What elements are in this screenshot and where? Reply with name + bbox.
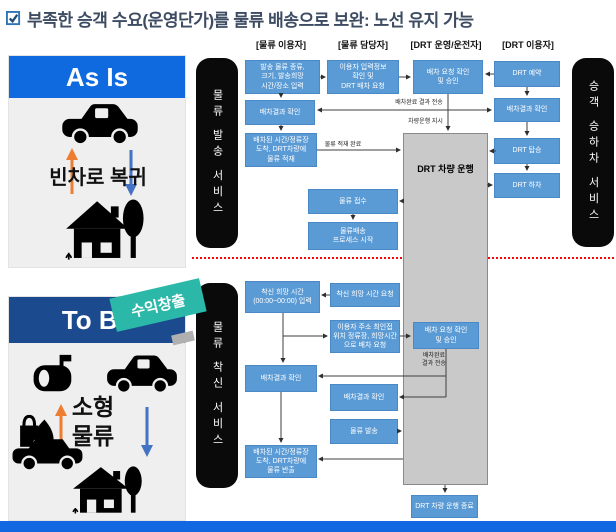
flow-box-load-logistics: 배차된 시간/정류장 도착, DRT차량에 물류 적재 xyxy=(245,133,317,167)
column-header-logistics-user: [물류 이용자] xyxy=(237,38,325,51)
label-drive-order: 차량운행 지시 xyxy=(403,119,448,127)
car-icon xyxy=(59,98,141,148)
service-bar-logistics-dispatch: 물류 발송 서비스 xyxy=(196,58,238,248)
label-load-done: 물류 적재 완료 xyxy=(320,142,366,150)
flow-box-unload-logistics: 배차된 시간/정류장 도착, DRT차량에 물류 반출 xyxy=(245,445,317,478)
checkbox-icon xyxy=(6,11,21,26)
car-icon xyxy=(104,351,180,395)
flow-box-address-dispatch-request: 이용자 주소 최인접 위치 정류장, 희망시간 으로 배차 요청 xyxy=(330,320,400,353)
flow-box-drt-reserve: DRT 예약 xyxy=(494,61,560,87)
slide: 부족한 승객 수요(운영단가)를 물류 배송으로 보완: 노선 유지 가능 As… xyxy=(0,0,616,532)
as-is-header: As Is xyxy=(9,56,185,98)
column-header-drt-operator: [DRT 운영/운전자] xyxy=(402,38,490,51)
house-icon xyxy=(67,461,147,515)
flow-box-dispatch-result-3: 배차결과 확인 xyxy=(245,365,317,392)
flow-box-dispatch-result-user: 배차결과 확인 xyxy=(245,100,315,125)
flow-box-dispatch-result-drt-user: 배차결과 확인 xyxy=(494,98,560,122)
flow-box-logistics-send: 물류 발송 xyxy=(330,419,398,444)
label-dispatch-result-sent-2: 배차완료 결과 전송 xyxy=(414,353,454,369)
service-bar-passenger: 승객 승하차 서비스 xyxy=(572,58,614,247)
flow-box-dispatch-approve: 배차 요청 확인 및 승인 xyxy=(413,60,483,94)
as-is-panel: As Is 빈차로 복귀 xyxy=(8,55,186,268)
as-is-caption: 빈차로 복귀 xyxy=(9,161,187,190)
flow-box-dispatch-result-4: 배차결과 확인 xyxy=(330,384,398,411)
house-icon xyxy=(61,192,147,262)
flow-box-drt-alight: DRT 하차 xyxy=(494,173,560,198)
drt-vehicle-operation-box: DRT 차량 운행 xyxy=(403,133,488,485)
mailbox-icon xyxy=(31,353,83,397)
page-title: 부족한 승객 수요(운영단가)를 물류 배송으로 보완: 노선 유지 가능 xyxy=(6,6,474,31)
flow-box-dispatch-approve-2: 배차 요청 확인 및 승인 xyxy=(413,322,479,349)
flow-box-user-info-check: 이용자 입력정보 확인 및 DRT 배차 요청 xyxy=(327,60,399,94)
flow-box-drt-end: DRT 차량 운행 종료 xyxy=(411,495,478,518)
flow-box-logistics-receipt: 물류 접수 xyxy=(308,189,398,214)
service-bar-logistics-receive: 물류 착신 서비스 xyxy=(196,283,238,488)
bottom-accent-bar xyxy=(0,521,616,532)
flow-box-drt-board: DRT 탑승 xyxy=(494,138,560,164)
flow-box-receive-time-input: 착신 희망 시간 (00:00~00:00) 입력 xyxy=(245,281,320,313)
flow-box-receive-time-request: 착신 희망 시간 요청 xyxy=(330,283,400,307)
to-be-panel: To Be 소형 물류 xyxy=(8,296,186,521)
title-text: 부족한 승객 수요(운영단가)를 물류 배송으로 보완: 노선 유지 가능 xyxy=(27,6,474,31)
flow-box-delivery-process-start: 물류배송 프로세스 시작 xyxy=(308,222,398,250)
column-header-logistics-manager: [물류 담당자] xyxy=(322,38,404,51)
flow-box-logistics-input: 발송 물류 종류, 크기, 발송희망 시간/장소 입력 xyxy=(245,60,320,94)
drt-vehicle-operation-label: DRT 차량 운행 xyxy=(404,162,487,175)
label-dispatch-result-sent: 배차완료 결과 전송 xyxy=(388,100,450,108)
arrow-down-icon xyxy=(141,405,153,457)
column-header-drt-user: [DRT 이용자] xyxy=(490,38,566,51)
